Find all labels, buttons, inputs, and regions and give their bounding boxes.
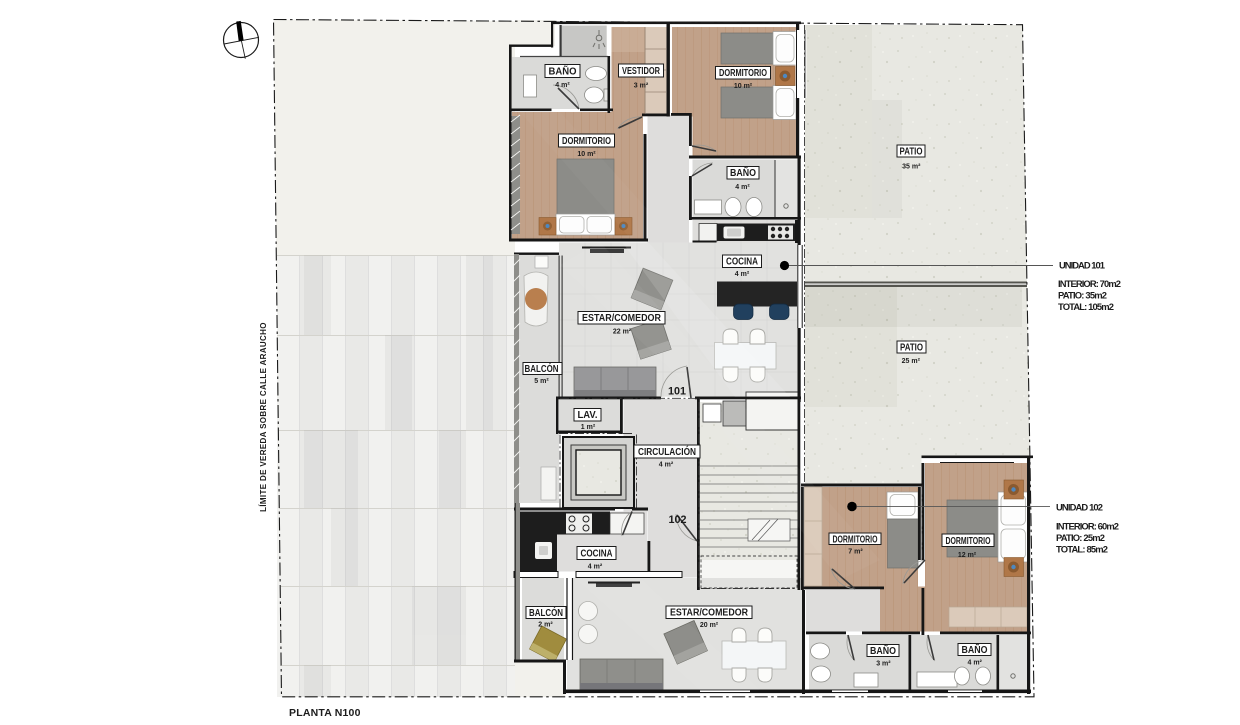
- svg-text:1 m²: 1 m²: [581, 424, 596, 431]
- svg-text:COCINA: COCINA: [726, 257, 758, 268]
- svg-text:LAV.: LAV.: [578, 410, 598, 421]
- svg-text:4 m²: 4 m²: [555, 82, 570, 89]
- svg-text:3 m²: 3 m²: [634, 83, 649, 90]
- svg-text:CIRCULACIÓN: CIRCULACIÓN: [638, 446, 696, 458]
- svg-text:3 m²: 3 m²: [876, 661, 891, 668]
- svg-text:PATIO: PATIO: [900, 147, 923, 158]
- svg-text:DORMITORIO: DORMITORIO: [562, 136, 611, 147]
- svg-text:25 m²: 25 m²: [902, 358, 921, 365]
- svg-text:5 m²: 5 m²: [534, 378, 549, 385]
- svg-text:BAÑO: BAÑO: [870, 646, 896, 657]
- svg-text:4 m²: 4 m²: [735, 184, 750, 191]
- svg-text:10 m²: 10 m²: [734, 83, 753, 90]
- svg-text:22 m²: 22 m²: [613, 329, 632, 336]
- svg-text:DORMITORIO: DORMITORIO: [833, 534, 878, 545]
- svg-text:VESTIDOR: VESTIDOR: [622, 66, 660, 77]
- svg-text:PATIO: PATIO: [900, 343, 923, 354]
- svg-text:PLANTA N100: PLANTA N100: [289, 707, 361, 719]
- svg-text:ESTAR/COMEDOR: ESTAR/COMEDOR: [670, 608, 748, 619]
- svg-text:INTERIOR: 60m2: INTERIOR: 60m2: [1056, 520, 1119, 531]
- svg-text:2 m²: 2 m²: [538, 622, 553, 629]
- svg-text:4 m²: 4 m²: [967, 660, 982, 667]
- svg-text:4 m²: 4 m²: [735, 271, 750, 278]
- svg-text:20 m²: 20 m²: [700, 622, 719, 629]
- svg-text:BAÑO: BAÑO: [962, 645, 988, 656]
- svg-text:12 m²: 12 m²: [958, 552, 977, 559]
- svg-text:7 m²: 7 m²: [848, 549, 863, 556]
- svg-text:BAÑO: BAÑO: [549, 66, 577, 77]
- svg-text:102: 102: [668, 514, 686, 526]
- svg-text:LÍMITE DE VEREDA SOBRE CALLE A: LÍMITE DE VEREDA SOBRE CALLE ARAUCHO: [259, 322, 268, 512]
- svg-text:INTERIOR: 70m2: INTERIOR: 70m2: [1058, 278, 1121, 289]
- svg-text:PATIO: 25m2: PATIO: 25m2: [1056, 532, 1105, 543]
- svg-text:DORMITORIO: DORMITORIO: [946, 536, 991, 547]
- svg-text:4 m²: 4 m²: [659, 462, 674, 469]
- svg-text:PATIO: 35m2: PATIO: 35m2: [1058, 289, 1107, 300]
- svg-text:ESTAR/COMEDOR: ESTAR/COMEDOR: [582, 313, 661, 324]
- svg-text:BALCÓN: BALCÓN: [529, 607, 563, 619]
- svg-text:UNIDAD 102: UNIDAD 102: [1056, 501, 1103, 512]
- svg-text:35 m²: 35 m²: [902, 164, 921, 171]
- svg-text:10 m²: 10 m²: [577, 151, 596, 158]
- svg-text:4 m²: 4 m²: [588, 564, 603, 571]
- svg-text:101: 101: [668, 386, 686, 398]
- svg-text:UNIDAD 101: UNIDAD 101: [1059, 260, 1105, 271]
- svg-text:COCINA: COCINA: [581, 549, 613, 560]
- svg-text:TOTAL: 105m2: TOTAL: 105m2: [1058, 301, 1114, 312]
- svg-text:TOTAL: 85m2: TOTAL: 85m2: [1056, 544, 1108, 555]
- svg-text:DORMITORIO: DORMITORIO: [719, 68, 767, 79]
- svg-text:BAÑO: BAÑO: [730, 168, 756, 179]
- svg-text:BALCÓN: BALCÓN: [525, 363, 559, 375]
